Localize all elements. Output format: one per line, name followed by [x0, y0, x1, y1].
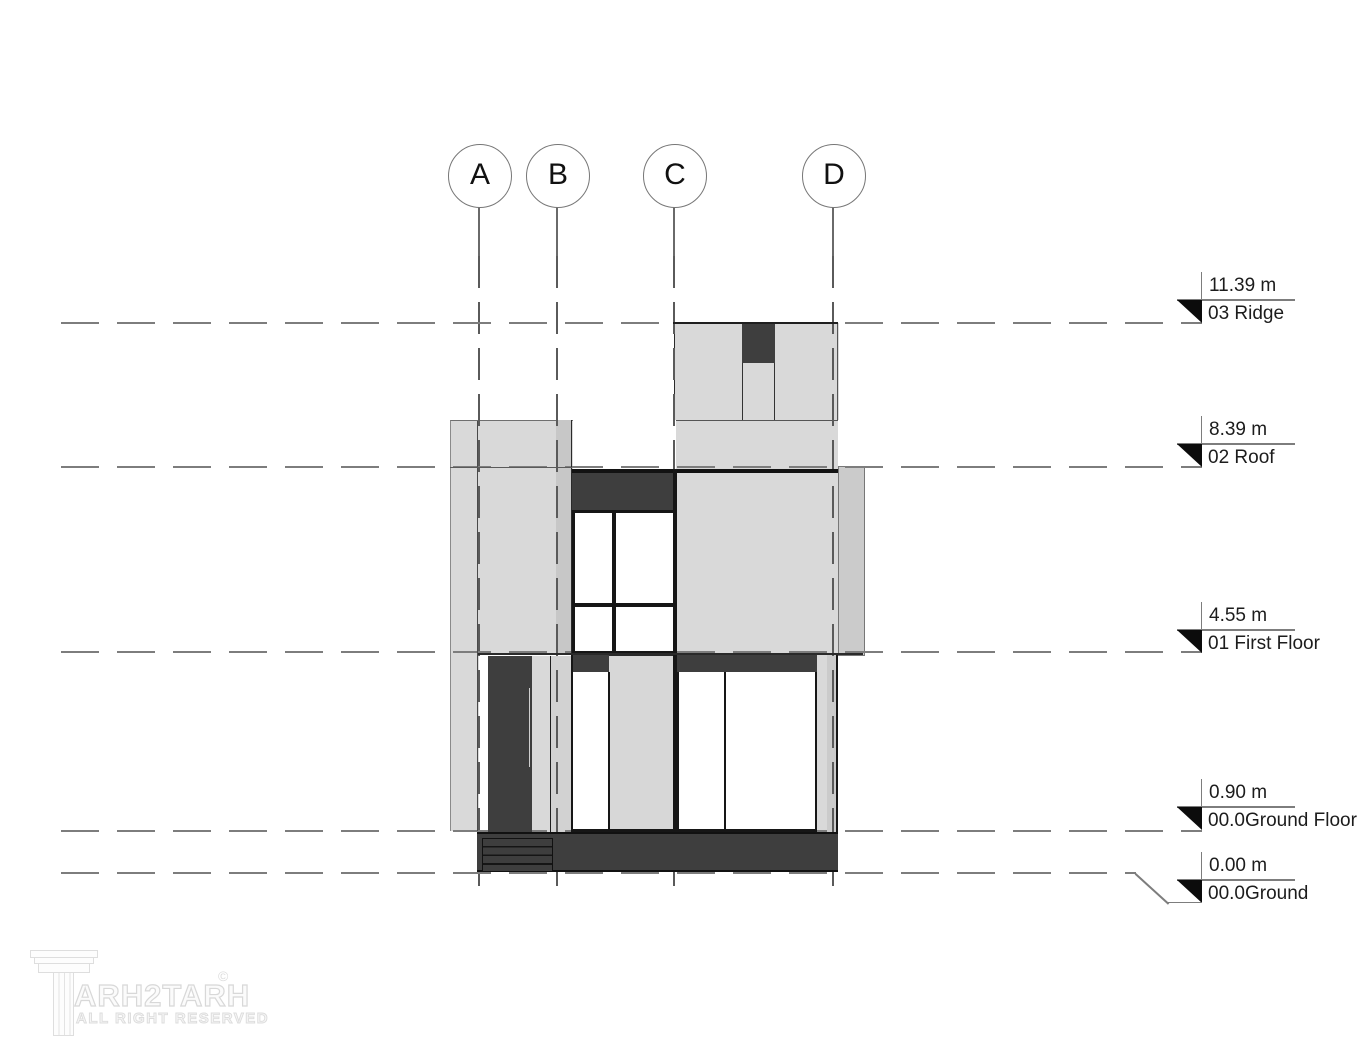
elevation-name-3: 00.0Ground Floor — [1208, 809, 1357, 832]
elevation-name-4: 00.0Ground — [1208, 882, 1308, 905]
grid-bubble-b: B — [526, 144, 590, 208]
level-line-jog-diagonal — [1135, 873, 1169, 904]
elevation-value-0: 11.39 m — [1209, 274, 1276, 298]
elevation-drawing: ABCD11.39 m03 Ridge8.39 m02 Roof4.55 m01… — [0, 0, 1359, 1050]
elevation-value-1: 8.39 m — [1209, 418, 1267, 442]
elevation-marker-triangle-2 — [1177, 630, 1202, 653]
elevation-name-0: 03 Ridge — [1208, 302, 1284, 325]
elevation-name-1: 02 Roof — [1208, 446, 1275, 469]
elevation-value-2: 4.55 m — [1209, 604, 1267, 628]
elevation-name-2: 01 First Floor — [1208, 632, 1320, 655]
elevation-marker-tick-4 — [1201, 852, 1202, 880]
grid-bubble-c: C — [643, 144, 707, 208]
watermark-copyright-icon: © — [218, 968, 228, 984]
elevation-value-4: 0.00 m — [1209, 854, 1267, 878]
grid-bubble-a: A — [448, 144, 512, 208]
elevation-marker-tick-2 — [1201, 602, 1202, 630]
elevation-marker-tick-1 — [1201, 416, 1202, 444]
elevation-marker-tick-0 — [1201, 272, 1202, 300]
elevation-marker-tick-3 — [1201, 779, 1202, 807]
watermark-logo: ARH2TARH © ALL RIGHT RESERVED — [30, 948, 360, 1038]
watermark-subtitle-text: ALL RIGHT RESERVED — [76, 1010, 269, 1027]
elevation-marker-triangle-3 — [1177, 807, 1202, 830]
elevation-value-3: 0.90 m — [1209, 781, 1267, 805]
elevation-marker-triangle-0 — [1177, 300, 1202, 323]
annotation-layer: ABCD11.39 m03 Ridge8.39 m02 Roof4.55 m01… — [0, 0, 1359, 1050]
elevation-marker-triangle-4 — [1177, 880, 1202, 903]
grid-bubble-d: D — [802, 144, 866, 208]
column-shaft — [53, 972, 74, 1036]
level-line-jog-bottom — [1168, 902, 1202, 904]
elevation-marker-triangle-1 — [1177, 444, 1202, 467]
